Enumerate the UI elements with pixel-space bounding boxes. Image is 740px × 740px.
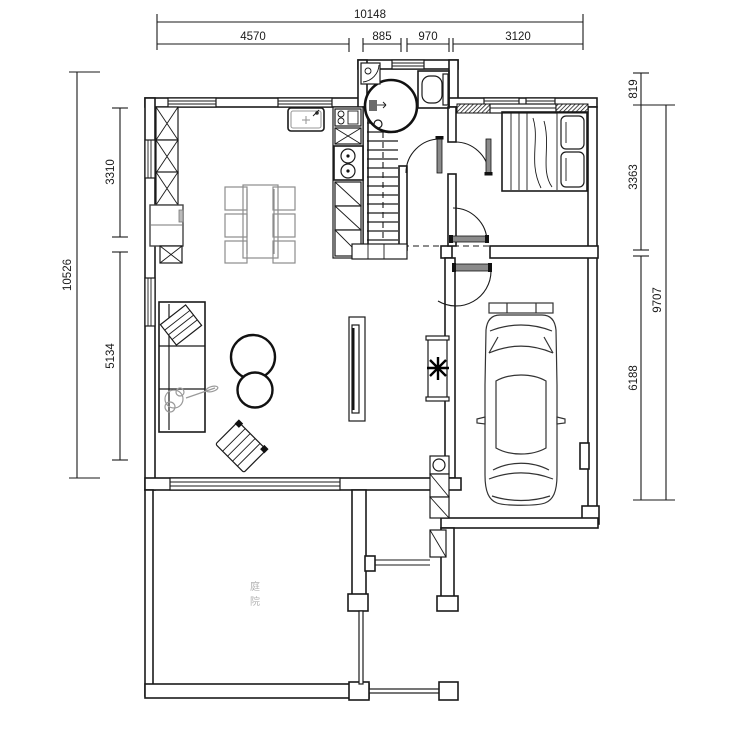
living-room (159, 302, 449, 473)
bathroom-door (406, 136, 444, 173)
wall-kitchen-stair (363, 107, 368, 258)
stair-landing (352, 244, 407, 259)
dimension-right: 819 3363 6188 9707 (628, 73, 675, 500)
dining-chair (273, 241, 295, 263)
fridge (150, 205, 183, 246)
courtyard-label-char1: 庭 (250, 580, 260, 593)
dim-top-overall: 10148 (354, 9, 386, 21)
car-mirror (557, 417, 565, 424)
walls (145, 60, 599, 528)
coffee-table (238, 373, 273, 408)
dining-chair (273, 187, 295, 210)
wall-right-pilaster (580, 443, 589, 469)
dining-chair (273, 214, 295, 237)
bed (502, 112, 587, 191)
bedroom (457, 104, 588, 191)
pillow (561, 116, 584, 149)
bathroom (361, 63, 449, 132)
window (170, 478, 340, 490)
courtyard-fence-bottom (369, 689, 441, 693)
fence-stub (365, 556, 375, 571)
window (278, 98, 332, 107)
dimension-top: 10148 4570 885 970 3120 (157, 9, 583, 52)
dim-top-seg1: 4570 (240, 31, 266, 43)
courtyard-wall-left (145, 490, 153, 696)
window (168, 98, 216, 107)
wall-bedroom-south-a (441, 246, 452, 258)
wall-stair-side (399, 166, 407, 250)
dim-top-seg4: 3120 (505, 31, 531, 43)
kitchen-sink (288, 108, 324, 131)
dim-right-overall: 9707 (652, 287, 664, 313)
courtyard-walls (145, 490, 458, 700)
fence-pillar (349, 682, 369, 700)
wall-bedroom-south-b (490, 246, 598, 258)
car (477, 303, 565, 505)
dining-chair (225, 241, 247, 263)
dim-left-seg1: 3310 (105, 159, 117, 185)
dimension-left: 10526 3310 5134 (62, 72, 128, 478)
dim-right-seg2: 3363 (628, 164, 640, 190)
courtyard-wall-column (352, 490, 366, 596)
bedroom-upper-door (455, 139, 493, 176)
floor-plan-canvas: 庭 院 10148 4570 885 970 3120 10526 3310 (0, 0, 740, 740)
dim-right-seg3: 6188 (628, 365, 640, 391)
corner-sink (361, 63, 380, 84)
sofa-pillow (160, 305, 201, 345)
fence-pillar (348, 594, 368, 611)
tall-cabinet (156, 107, 178, 205)
courtyard-wall-bottom (145, 684, 369, 698)
courtyard-label-char2: 院 (250, 595, 260, 608)
toilet (418, 71, 449, 108)
courtyard-label: 庭 院 (250, 580, 260, 608)
dining-set (225, 185, 295, 263)
window (145, 278, 155, 326)
dining-chair (225, 187, 247, 210)
closet-shelf (457, 104, 490, 113)
wall-below-garage-foot (437, 596, 458, 611)
garage-cabinets (430, 456, 449, 557)
base-cabinet (160, 246, 182, 263)
fence-pillar (439, 682, 458, 700)
window (392, 60, 424, 69)
dim-right-seg1: 819 (628, 79, 640, 98)
dim-left-seg2: 5134 (105, 343, 117, 369)
wall-garage-south (441, 518, 598, 528)
wall-hall-bedroom-a (448, 107, 456, 142)
window (145, 140, 155, 178)
floor-plan-drawing: 庭 院 10148 4570 885 970 3120 10526 3310 (0, 0, 740, 740)
courtyard-fence-right (359, 611, 363, 684)
dim-top-seg3: 970 (418, 31, 437, 43)
dim-left-overall: 10526 (62, 259, 74, 291)
pillow (561, 152, 584, 187)
armchair (215, 419, 269, 473)
dining-chair (225, 214, 247, 237)
car-mirror (477, 417, 485, 424)
dim-top-seg2: 885 (372, 31, 391, 43)
counter-column (333, 107, 363, 258)
sofa (159, 302, 218, 432)
tv-cabinet (349, 317, 365, 421)
planter (426, 336, 449, 401)
